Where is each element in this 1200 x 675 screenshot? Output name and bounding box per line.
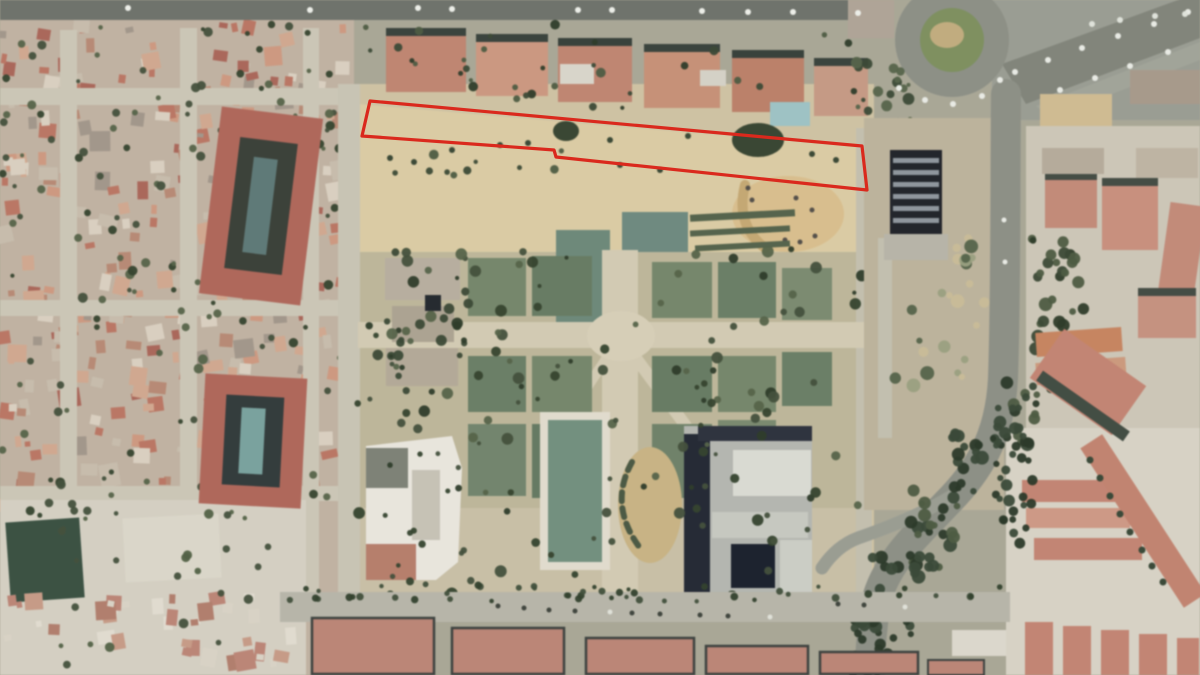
parking-stripe-5: [893, 206, 939, 211]
west-cluster-building-1: [385, 258, 460, 300]
se-stub-4: [1139, 634, 1167, 675]
complex-white-wing: [733, 450, 811, 496]
esplanade-tree-blob-2: [732, 123, 784, 157]
top-right-block: [1130, 70, 1200, 104]
se-stub-3: [1101, 630, 1129, 675]
right-building-4: [1042, 148, 1104, 174]
bottom-block-2: [452, 628, 564, 674]
sports-court: [5, 518, 84, 603]
roundabout-nw-building: [848, 0, 894, 38]
north-roof-light-1: [560, 64, 594, 84]
se-stub-5: [1177, 638, 1199, 675]
bottom-block-6: [928, 660, 984, 675]
parking-stripe-4: [893, 194, 939, 199]
parcel-garden-b5: [782, 352, 832, 406]
aerial-imagery: [0, 0, 1200, 675]
parking-stripe-6: [893, 218, 939, 223]
se-row-3: [1034, 538, 1142, 560]
garden-ne-teal: [622, 212, 688, 252]
right-building-2: [1102, 186, 1158, 250]
bottom-block-3: [586, 638, 694, 674]
se-row-2: [1026, 508, 1130, 528]
street-horizontal-1: [0, 88, 350, 105]
bottom-block-4: [706, 646, 808, 674]
verge-service-path: [878, 238, 892, 438]
satellite-scene: [0, 0, 1200, 675]
north-roof-light-2: [700, 70, 726, 86]
bottom-block-5: [820, 652, 918, 674]
parcel-garden-b2: [532, 356, 592, 412]
parcel-garden-b4: [718, 356, 776, 412]
right-building-1: [1045, 180, 1097, 228]
park-plaza: [587, 311, 655, 361]
esplanade-tree-blob-1: [553, 121, 579, 141]
parking-stripe-3: [893, 182, 939, 187]
complex-east-wing: [780, 540, 812, 596]
se-stub-2: [1063, 626, 1091, 675]
west-cluster-tower: [425, 295, 441, 311]
complex-dark-north-band: [698, 426, 812, 441]
right-building-5: [1136, 148, 1198, 178]
parcel-garden-a3: [652, 262, 712, 318]
school-building: [122, 514, 221, 583]
right-building-6-shadow: [1138, 288, 1196, 297]
complex-dark-court: [731, 544, 775, 588]
parking-stripe-2: [893, 170, 939, 175]
right-building-6: [1138, 296, 1196, 338]
complex-dark-west-band: [684, 434, 710, 604]
bottom-white-building: [952, 630, 1006, 656]
rooftop-pool: [770, 102, 810, 126]
campus-west-street: [338, 84, 360, 616]
se-stub-1: [1025, 622, 1053, 675]
parking-stripe-1: [893, 158, 939, 163]
roundabout-center-sand: [930, 22, 964, 48]
parcel-garden-a4: [718, 262, 776, 318]
sandy-patch-ne: [1040, 94, 1112, 130]
top-highway: [0, 0, 888, 20]
bottom-block-1: [312, 618, 434, 674]
parking-apron: [884, 234, 948, 260]
map-viewport: [0, 0, 1200, 675]
white-building-dark-wing: [366, 448, 408, 488]
north-block-6: [814, 66, 868, 116]
courtyard-block-south-pool: [238, 407, 265, 474]
